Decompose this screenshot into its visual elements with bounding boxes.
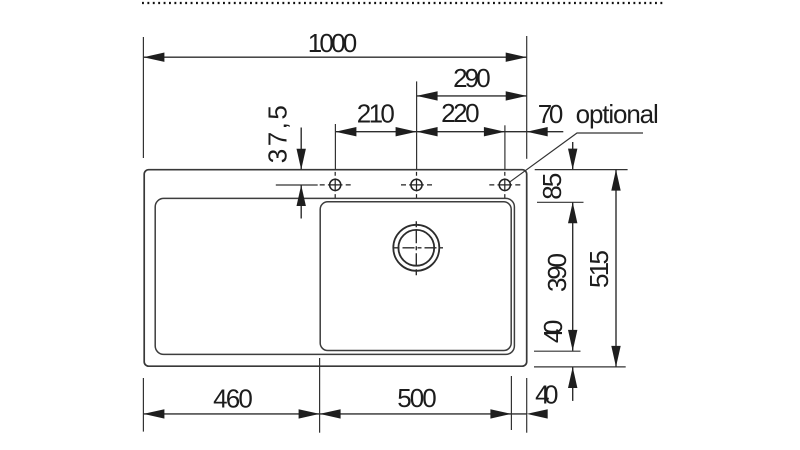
svg-text:515: 515 [584, 250, 614, 288]
svg-text:optional: optional [576, 99, 659, 129]
svg-text:40: 40 [538, 320, 568, 343]
svg-text:70: 70 [538, 99, 564, 129]
svg-text:1000: 1000 [308, 28, 358, 58]
svg-text:85: 85 [537, 173, 567, 200]
svg-text:210: 210 [357, 99, 395, 129]
svg-text:390: 390 [542, 253, 572, 292]
svg-text:460: 460 [213, 383, 253, 413]
svg-text:37,5: 37,5 [263, 105, 293, 163]
svg-text:220: 220 [441, 98, 480, 128]
svg-text:500: 500 [397, 383, 436, 413]
svg-text:40: 40 [535, 380, 558, 410]
svg-text:290: 290 [453, 63, 491, 93]
